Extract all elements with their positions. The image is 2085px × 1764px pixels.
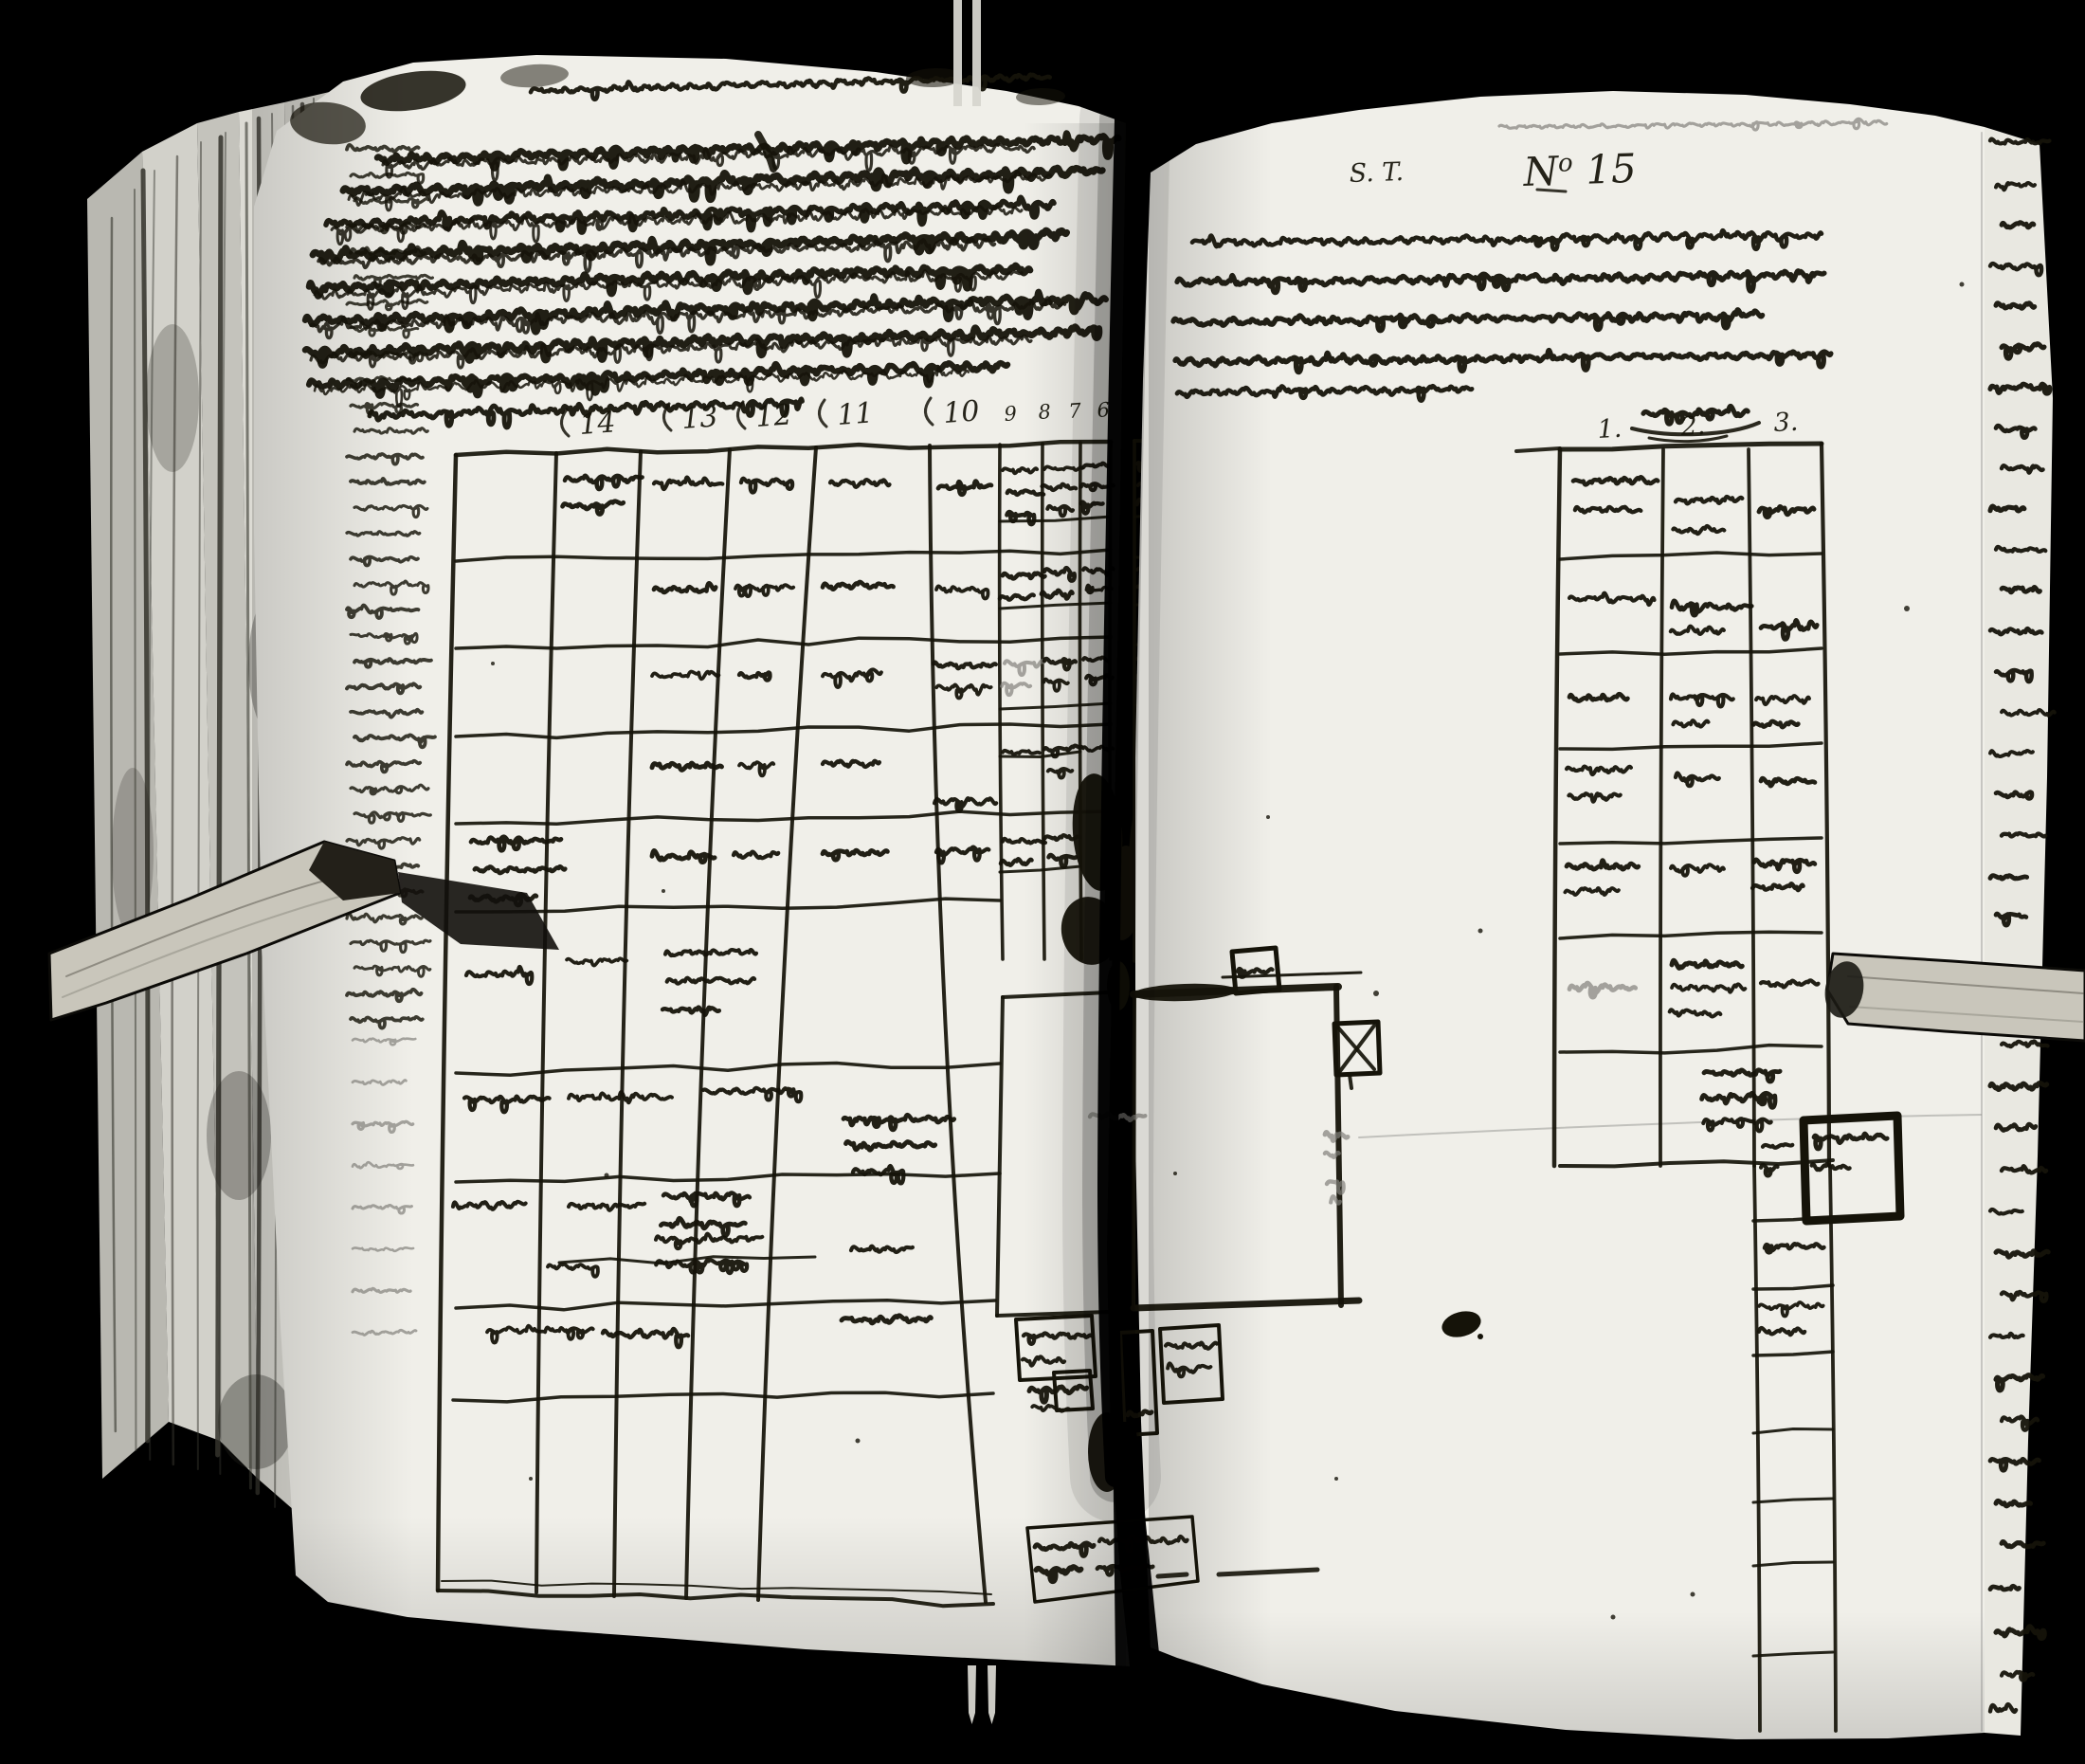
column-header-number: 10 [942, 394, 981, 430]
column-header-number: 2. [1679, 411, 1706, 442]
heading-st: S. T. [1349, 157, 1404, 189]
right-page: S. T.No 151.2.3. [1135, 91, 2055, 1739]
column-header-number: 3. [1773, 408, 1799, 438]
column-header-number: 11 [836, 396, 875, 432]
column-header-number: 1. [1597, 414, 1623, 445]
page-number: No 15 [1522, 145, 1638, 195]
column-header-number: 9 [1004, 402, 1018, 426]
archival-manuscript-spread: 141312111098761S. T.No 151.2.3. [0, 0, 2085, 1764]
column-header-number: 14 [578, 406, 617, 442]
column-header-number: 13 [680, 400, 719, 436]
book-scan-photo: 141312111098761S. T.No 151.2.3. [0, 0, 2085, 1764]
column-header-number: 12 [754, 398, 793, 434]
column-header-number: 8 [1038, 400, 1052, 424]
